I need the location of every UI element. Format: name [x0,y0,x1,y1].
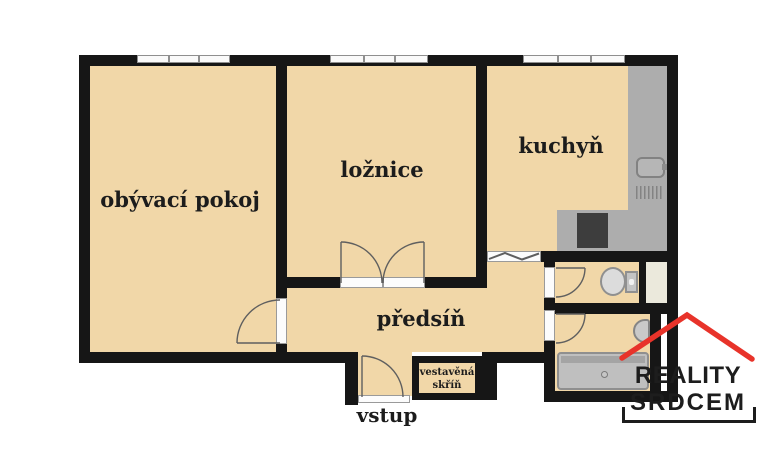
floor-plan: obývací pokoj ložnice kuchyň předsíň ves… [0,0,768,459]
window-living-room-icon [137,55,230,63]
door-frame-bedroom-double [340,277,425,288]
window-mullion [363,56,365,62]
window-mullion [590,56,592,62]
room-label-hallway: předsíň [341,308,501,329]
wall-wc-bathroom [544,303,678,314]
window-mullion [557,56,559,62]
wall-wardrobe-right [482,352,497,400]
wall-wc-shaft [639,262,646,303]
window-bedroom-icon [330,55,428,63]
window-mullion [394,56,396,62]
room-label-entrance: vstup [327,405,447,425]
toilet-flush-button-icon [629,279,634,285]
room-label-built-in-wardrobe: vestavěná skříň [419,367,475,392]
stove-icon [577,213,608,248]
bathtub-rim [561,356,645,363]
door-frame-kitchen-folding [487,251,541,262]
door-frame-wc [544,267,555,298]
wall-kitchen-bottom [541,251,678,262]
door-frame-entrance [358,395,410,403]
window-mullion [168,56,170,62]
installation-shaft [646,262,667,303]
window-kitchen-icon [523,55,625,63]
dish-drainer-icon [636,186,663,199]
wall-bottom-left [90,352,345,363]
room-label-living-room: obývací pokoj [80,189,280,210]
double-door-divider [382,278,384,287]
wall-bedroom-kitchen [476,66,487,288]
wall-left [79,66,90,363]
kitchen-counter-bottom [557,210,667,251]
logo-text-line1: REALITY [620,364,756,388]
floor-entrance-vestibule [358,352,412,396]
logo-bracket [622,407,756,423]
wall-living-bedroom-upper [276,66,287,298]
wall-vestibule-left [345,352,358,405]
toilet-bowl-icon [600,267,626,296]
wall-right [667,66,678,402]
door-frame-living-room [276,298,287,344]
room-label-bedroom: ložnice [302,159,462,180]
window-mullion [198,56,200,62]
floor-hallway-extension [487,262,544,288]
wall-living-bedroom-lower [276,344,287,352]
wall-bedroom-bottom-right [425,277,476,288]
kitchen-sink-icon [636,157,665,178]
bathtub-drain-icon [601,371,608,378]
washbasin-icon [633,319,650,343]
room-label-kitchen: kuchyň [481,135,641,156]
door-frame-bathroom [544,310,555,341]
wall-bedroom-bottom-left [287,277,340,288]
